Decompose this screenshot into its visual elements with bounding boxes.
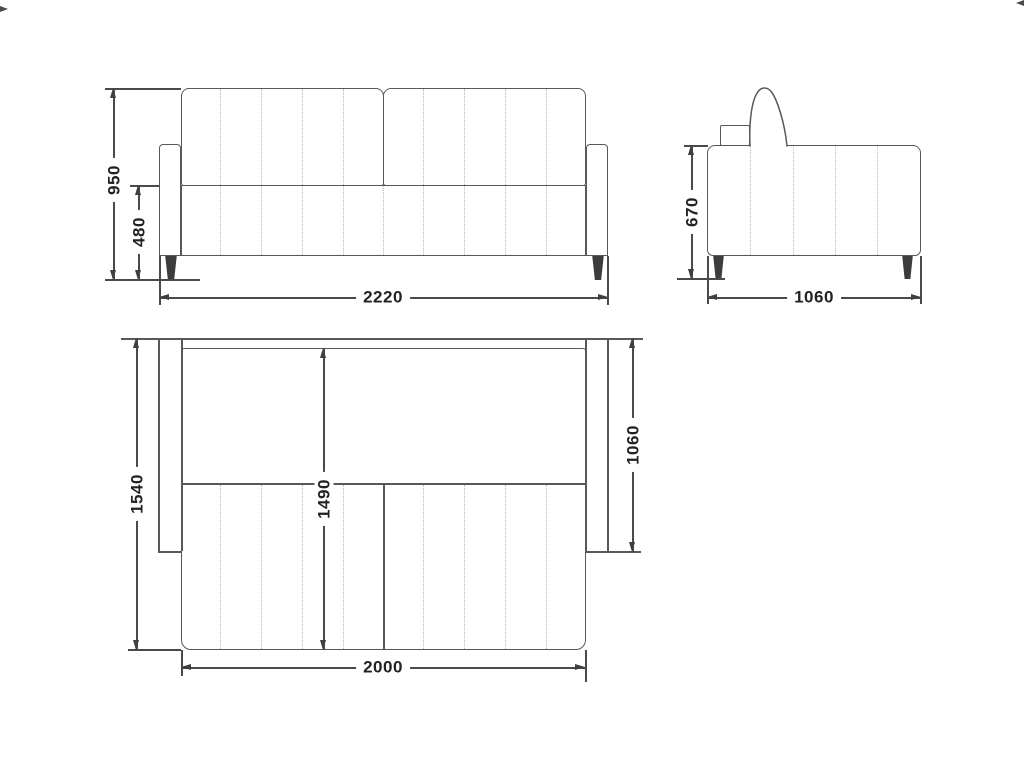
- stitch-line: [423, 485, 424, 649]
- dim-label-bed-length: 1490: [315, 472, 334, 526]
- dimension-arrow: [181, 664, 191, 670]
- dimension-arrow: [320, 640, 326, 650]
- stitch-line: [546, 485, 547, 649]
- dimension-arrow: [320, 348, 326, 358]
- top-view: 1540 1490 1060 2000: [0, 0, 1024, 768]
- dimension-arrow: [133, 338, 139, 348]
- stitch-line: [302, 485, 303, 649]
- armrest-right-outer-edge: [607, 338, 609, 552]
- dimension-arrow: [133, 640, 139, 650]
- armrest-left-front-edge: [158, 551, 182, 553]
- sofa-dimension-drawing: 950 480 2220 670 1060: [0, 0, 1024, 768]
- extension-line: [181, 650, 183, 676]
- center-seam-line: [383, 484, 385, 650]
- dim-label-unfolded-depth: 1540: [128, 467, 147, 521]
- extension-line: [585, 650, 587, 682]
- dimension-arrow: [629, 338, 635, 348]
- dim-label-bed-width: 2000: [356, 658, 410, 677]
- dimension-arrow: [575, 664, 585, 670]
- dim-label-body-depth: 1060: [624, 418, 643, 472]
- fold-arrow-right: [0, 6, 1024, 12]
- stitch-line: [343, 485, 344, 649]
- stitch-line: [505, 485, 506, 649]
- stitch-line: [261, 485, 262, 649]
- sofa-back-edge: [121, 338, 643, 340]
- stitch-line: [220, 485, 221, 649]
- dimension-arrow: [629, 542, 635, 552]
- stitch-line: [464, 485, 465, 649]
- armrest-left-outer-edge: [158, 338, 160, 551]
